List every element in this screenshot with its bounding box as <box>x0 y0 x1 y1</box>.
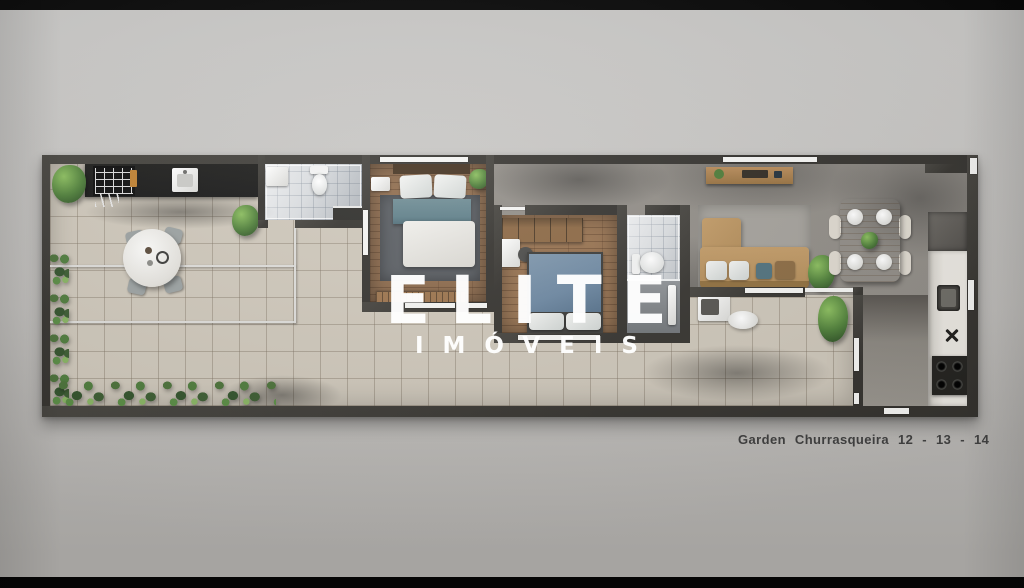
window-kitchen-right <box>968 280 974 310</box>
window-bedroom-1-left <box>363 210 368 255</box>
door-living-terrace <box>805 288 853 292</box>
plan-caption: Garden Churrasqueira 12 - 13 - 14 <box>738 432 989 447</box>
window-kitchen-terrace-2 <box>854 393 859 404</box>
door-bottom-right <box>884 408 909 414</box>
window-living-bottom <box>745 288 803 293</box>
window-kitchen-terrace <box>854 338 859 371</box>
window-bedroom-1-top <box>380 157 468 162</box>
window-right-top <box>970 158 977 174</box>
door-bedroom-2 <box>500 207 525 210</box>
watermark-brand-name: ELITE <box>385 274 687 328</box>
letterbox-top <box>0 0 1024 10</box>
letterbox-bottom <box>0 577 1024 588</box>
watermark-logo: ELITE IMÓVEIS <box>385 274 687 359</box>
watermark-brand-subtitle: IMÓVEIS <box>385 333 687 359</box>
window-living-top <box>723 157 817 162</box>
render-background: ELITE IMÓVEIS Garden Churrasqueira 12 - … <box>0 0 1024 588</box>
